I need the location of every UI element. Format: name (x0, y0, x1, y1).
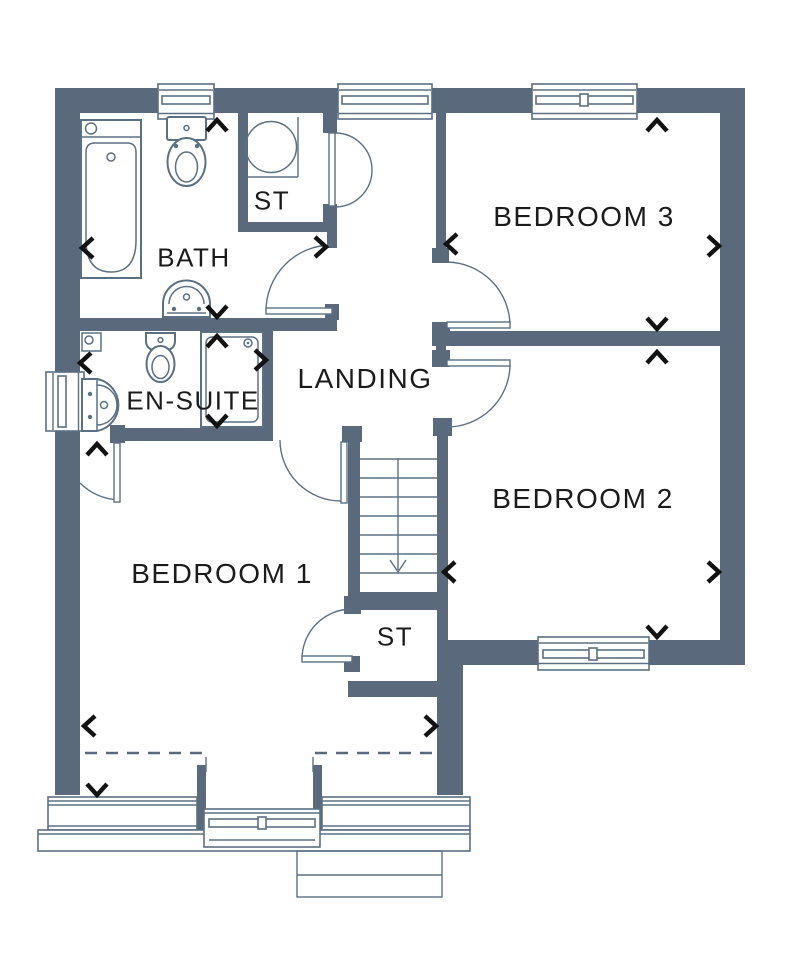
door-bedroom1 (280, 440, 347, 503)
wall-bath-ensuite (80, 318, 337, 331)
toilet-icon (146, 333, 175, 382)
door-leaf (329, 133, 335, 206)
wall-st-bottom-bottom (348, 681, 448, 697)
door-swing-arc (447, 366, 510, 427)
walls (55, 88, 745, 833)
door-ensuite (80, 443, 120, 502)
basin-icon (82, 379, 118, 431)
window-center-recessed (204, 809, 320, 847)
window-bedroom2-bottom (538, 637, 649, 670)
room-label-bedroom3: BEDROOM 3 (493, 201, 675, 233)
wall-right (720, 88, 745, 665)
room-label-landing: LANDING (298, 363, 433, 395)
arrow-right-icon (708, 562, 719, 582)
window-bedroom3-top (532, 84, 637, 119)
door-swing-arc (266, 245, 332, 311)
stub-bedroom1-hinge (342, 426, 362, 442)
door-swing-arc (280, 440, 341, 501)
stub-bifold-top (323, 113, 337, 133)
wall-left (55, 88, 80, 795)
arrow-up-icon (207, 120, 227, 131)
wall-st-top-bottom (238, 222, 337, 232)
wall-stair-right (437, 428, 448, 640)
wall-bedroom3-landing (436, 113, 446, 250)
door-swing-arc (335, 133, 372, 170)
door-swing-arc (335, 170, 372, 207)
wall-ensuite-right (263, 331, 273, 432)
arrow-up-icon (647, 352, 667, 363)
door-leaf (447, 360, 510, 366)
door-swing-arc (448, 262, 510, 325)
floor-plan-drawing (0, 0, 801, 975)
arrow-left-icon (80, 353, 91, 373)
bath-fixtures (81, 117, 210, 317)
door-leaf (341, 442, 347, 503)
stub-bedroom3-hinge (432, 248, 449, 263)
arrow-right-icon (708, 236, 719, 256)
jamb-ticks (206, 757, 313, 772)
wall-extension-right (437, 640, 463, 795)
arrow-up-icon (87, 444, 107, 455)
door-leaf (114, 443, 120, 502)
door-st-bottom (302, 609, 352, 662)
st-top-fixtures (246, 117, 299, 177)
stub-ensuite-hinge (110, 425, 125, 443)
door-leaf (302, 656, 352, 662)
floor-plan: BATH ST BEDROOM 3 EN-SUITE LANDING BEDRO… (0, 0, 801, 975)
arrow-left-icon (84, 716, 95, 736)
door-bedroom3 (447, 262, 510, 328)
room-label-st-top: ST (254, 186, 290, 217)
basin-icon (163, 281, 210, 317)
room-label-st-bottom: ST (377, 622, 413, 653)
door-swing-arc (302, 609, 352, 659)
staircase (360, 458, 437, 573)
arrow-down-icon (647, 626, 667, 637)
wall-stair-left (348, 440, 360, 598)
door-bedroom2 (447, 360, 510, 427)
door-leaf (266, 308, 332, 314)
door-bath (266, 245, 332, 314)
canopy-outline-below (297, 851, 442, 897)
room-label-bedroom1: BEDROOM 1 (131, 558, 313, 590)
stub-st-bottom-top (344, 596, 361, 614)
room-label-ensuite: EN-SUITE (126, 386, 259, 417)
door-st-top-double (329, 133, 372, 207)
arrow-right-icon (425, 716, 436, 736)
room-label-bedroom2: BEDROOM 2 (492, 483, 674, 515)
window-ensuite-left (46, 372, 84, 431)
water-tank-icon (246, 117, 299, 177)
room-label-bath: BATH (157, 243, 230, 274)
window-bay-bedroom1 (38, 757, 470, 851)
wall-st-top-left (238, 113, 248, 232)
arrow-down-icon (647, 318, 667, 329)
arrow-down-icon (87, 784, 107, 795)
wall-bedroom2-bedroom3 (440, 331, 720, 346)
toilet-icon (167, 117, 206, 186)
door-leaf (447, 322, 510, 328)
window-landing-top (338, 84, 432, 119)
wall-ensuite-bottom (117, 428, 273, 441)
corner-unit-icon (82, 333, 101, 351)
arrow-up-icon (647, 120, 667, 131)
window-bath-top (158, 84, 214, 119)
wall-stairwell-bottom (348, 592, 448, 610)
